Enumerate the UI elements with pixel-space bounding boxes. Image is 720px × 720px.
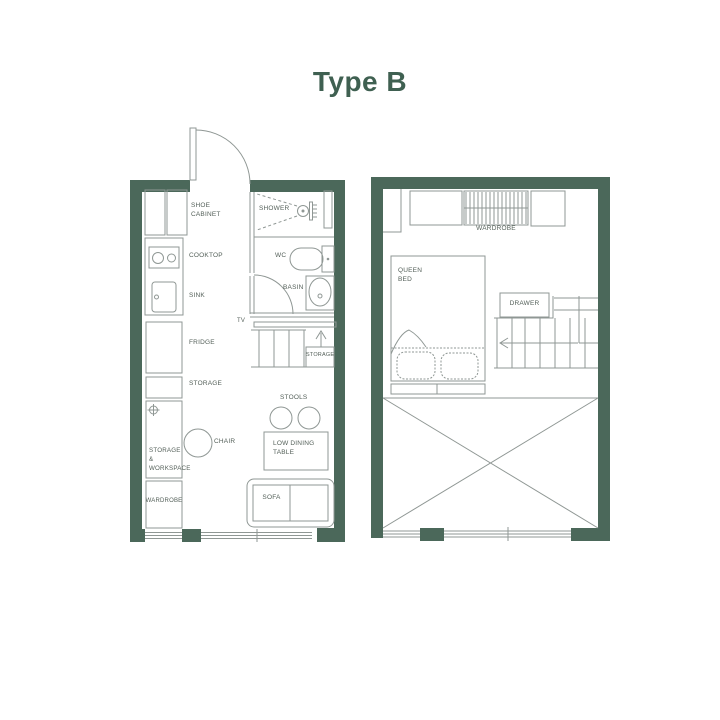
tv-label: TV	[237, 317, 245, 326]
sink-label: SINK	[189, 291, 205, 300]
blanket-fold	[391, 330, 426, 354]
toilet-icon	[290, 246, 334, 272]
storage-label: STORAGE	[189, 379, 222, 388]
shoe-cabinet	[145, 190, 187, 235]
cooktop-icon	[149, 247, 179, 268]
fridge-label: FRIDGE	[189, 338, 215, 347]
upper-wardrobe-label: WARDROBE	[464, 224, 528, 233]
kitchen-counter	[145, 238, 183, 315]
upper-wardrobe	[410, 191, 565, 226]
lower-walls	[130, 180, 345, 542]
lower-staircase	[251, 330, 334, 367]
floor-plan-page: Type B	[0, 0, 720, 720]
fridge	[146, 322, 182, 373]
corner-nook	[383, 189, 401, 232]
stools	[270, 407, 320, 429]
lower-wardrobe-label: WARDROBE	[145, 497, 183, 506]
drawer-label: DRAWER	[500, 299, 549, 308]
tv-unit	[250, 313, 336, 327]
lower-floor-plan	[130, 128, 345, 542]
wc-label: WC	[275, 251, 286, 260]
basin-label: BASIN	[283, 283, 304, 292]
basin-icon	[306, 276, 334, 310]
queen-bed-label: QUEEN BED	[398, 266, 422, 285]
cooktop-label: COOKTOP	[189, 251, 223, 260]
stools-label: STOOLS	[280, 393, 307, 402]
pillow	[397, 352, 435, 379]
chair-label: CHAIR	[214, 437, 235, 446]
sofa	[247, 479, 334, 527]
pillow	[441, 353, 478, 379]
dining-table-label: LOW DINING TABLE	[273, 439, 314, 458]
sink-icon	[152, 282, 176, 312]
storage-workspace-label: STORAGE & WORKSPACE	[149, 447, 191, 474]
storage-cabinet	[146, 377, 182, 398]
shower-label: SHOWER	[259, 204, 289, 213]
shower-glass	[324, 191, 332, 228]
stair-storage-label: STORAGE	[306, 352, 334, 360]
upper-windows	[383, 527, 571, 541]
headboard	[391, 384, 485, 394]
entrance-door	[190, 128, 250, 184]
lower-windows	[144, 529, 312, 542]
up-arrow-icon	[316, 331, 326, 347]
bathroom-door	[250, 275, 293, 314]
floor-plan-drawing	[0, 0, 720, 720]
void-area	[383, 398, 598, 528]
sofa-label: SOFA	[252, 493, 291, 502]
shoe-cabinet-label: SHOE CABINET	[191, 201, 221, 220]
